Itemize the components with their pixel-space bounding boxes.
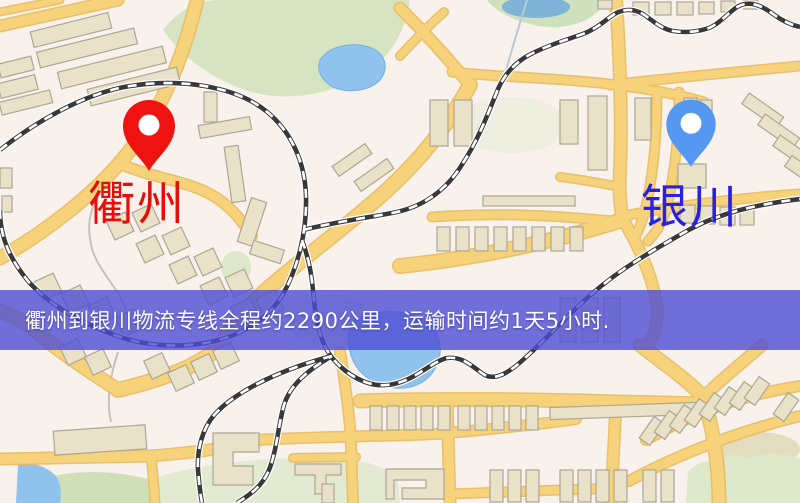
lake-north (319, 45, 386, 91)
logistics-route-map: 衢州 银川 衢州到银川物流专线全程约2290公里，运输时间约1天5小时. (0, 0, 800, 503)
map-canvas[interactable]: 衢州 银川 (0, 0, 800, 503)
route-info-banner: 衢州到银川物流专线全程约2290公里，运输时间约1天5小时. (0, 290, 800, 350)
origin-city-label: 衢州 (88, 177, 186, 232)
destination-city-label: 银川 (641, 180, 739, 235)
route-info-text: 衢州到银川物流专线全程约2290公里，运输时间约1天5小时. (25, 305, 610, 335)
